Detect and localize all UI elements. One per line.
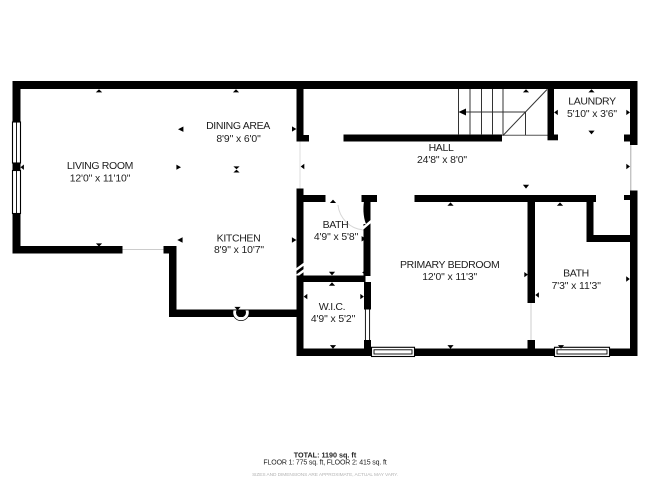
svg-text:KITCHEN: KITCHEN — [217, 233, 261, 245]
svg-text:FLOOR 1: 775 sq. ft, FLOOR 2:: FLOOR 1: 775 sq. ft, FLOOR 2: 415 sq. ft — [263, 460, 386, 467]
svg-text:5'10" x 3'6": 5'10" x 3'6" — [567, 109, 617, 120]
svg-text:TOTAL: 1190 sq. ft: TOTAL: 1190 sq. ft — [294, 450, 357, 459]
svg-text:4'9" x 5'2": 4'9" x 5'2" — [311, 314, 356, 325]
svg-text:24'8" x 8'0": 24'8" x 8'0" — [417, 155, 467, 166]
svg-text:DINING AREA: DINING AREA — [206, 120, 270, 132]
svg-text:BATH: BATH — [563, 268, 589, 280]
svg-text:LIVING ROOM: LIVING ROOM — [67, 160, 133, 172]
svg-text:LAUNDRY: LAUNDRY — [568, 96, 616, 108]
svg-text:BATH: BATH — [323, 219, 349, 231]
svg-text:SIZES AND DIMENSIONS ARE APPRO: SIZES AND DIMENSIONS ARE APPROXIMATE, AC… — [252, 472, 398, 478]
svg-text:12'0" x 11'3": 12'0" x 11'3" — [422, 272, 477, 283]
svg-text:7'3" x 11'3": 7'3" x 11'3" — [552, 281, 602, 292]
svg-text:HALL: HALL — [429, 142, 454, 154]
svg-text:8'9" x 10'7": 8'9" x 10'7" — [214, 245, 264, 256]
svg-text:W.I.C.: W.I.C. — [319, 301, 345, 313]
svg-text:8'9" x 6'0": 8'9" x 6'0" — [216, 134, 261, 145]
svg-text:12'0" x 11'10": 12'0" x 11'10" — [70, 174, 131, 185]
svg-text:4'9" x 5'8": 4'9" x 5'8" — [314, 232, 359, 243]
svg-text:PRIMARY BEDROOM: PRIMARY BEDROOM — [400, 259, 499, 271]
